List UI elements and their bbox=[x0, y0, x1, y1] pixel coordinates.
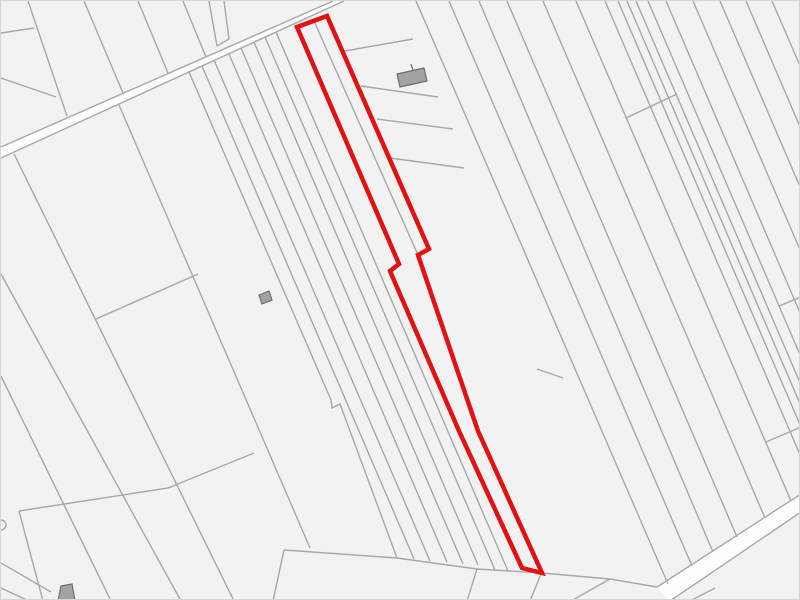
cadastral-map-canvas[interactable] bbox=[1, 1, 800, 600]
building-southwest bbox=[58, 584, 75, 600]
cadastral-map-viewport[interactable] bbox=[0, 0, 800, 600]
well-left-edge bbox=[1, 520, 6, 530]
